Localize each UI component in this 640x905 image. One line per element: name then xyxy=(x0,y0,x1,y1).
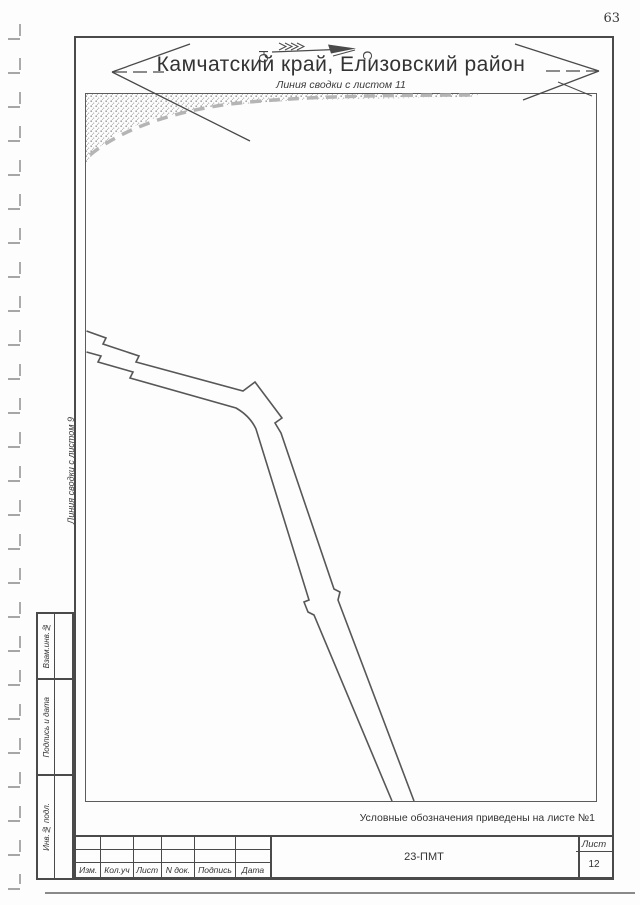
revision-col-list: Лист xyxy=(134,837,162,877)
page-number: 63 xyxy=(560,11,620,26)
stamp-label-vzam: Взам.инв.№ xyxy=(42,623,51,668)
revision-col-izm: Изм. xyxy=(76,837,101,877)
col-header-data: Дата xyxy=(236,863,270,877)
match-line-left-label: Линия сводки с листом 9 xyxy=(60,386,82,554)
col-header-koluch: Кол.уч xyxy=(101,863,132,877)
title-block: Изм. Кол.уч Лист N док. Подпись Дата 23-… xyxy=(74,835,614,879)
map-area xyxy=(85,93,597,802)
sheet-cell: Лист 12 xyxy=(576,837,612,877)
stamp-label-podpis-data: Подпись и дата xyxy=(42,697,51,758)
scan-edge-line xyxy=(45,892,635,894)
legend-note: Условные обозначения приведены на листе … xyxy=(290,812,595,824)
binding-marks-vertical xyxy=(19,24,21,884)
revision-col-koluch: Кол.уч xyxy=(101,837,133,877)
match-line-top-label: Линия сводки с листом 11 xyxy=(85,79,597,91)
stamp-label-inv: Инв.№ подл. xyxy=(42,803,51,851)
sheet-number: 12 xyxy=(576,852,612,877)
revision-table: Изм. Кол.уч Лист N док. Подпись Дата xyxy=(76,837,272,877)
col-header-podpis: Подпись xyxy=(195,863,235,877)
compass-south-letter: Ю xyxy=(256,48,272,64)
region-title: Камчатский край, Елизовский район xyxy=(85,53,597,77)
stamp-cell-podpis-data: Подпись и дата xyxy=(38,680,72,776)
col-header-ndok: N док. xyxy=(162,863,194,877)
stamp-cell-inv: Инв.№ подл. xyxy=(38,776,72,878)
document-number: 23-ПМТ xyxy=(270,837,580,877)
col-header-list: Лист xyxy=(134,863,161,877)
revision-col-data: Дата xyxy=(236,837,270,877)
compass-north-letter: С xyxy=(359,46,377,64)
revision-col-ndok: N док. xyxy=(162,837,195,877)
stamp-cell-vzam: Взам.инв.№ xyxy=(38,614,72,680)
revision-col-podpis: Подпись xyxy=(195,837,236,877)
sheet-label: Лист xyxy=(576,837,612,852)
stamp-sidebar: Взам.инв.№ Подпись и дата Инв.№ подл. xyxy=(36,612,74,880)
col-header-izm: Изм. xyxy=(76,863,100,877)
